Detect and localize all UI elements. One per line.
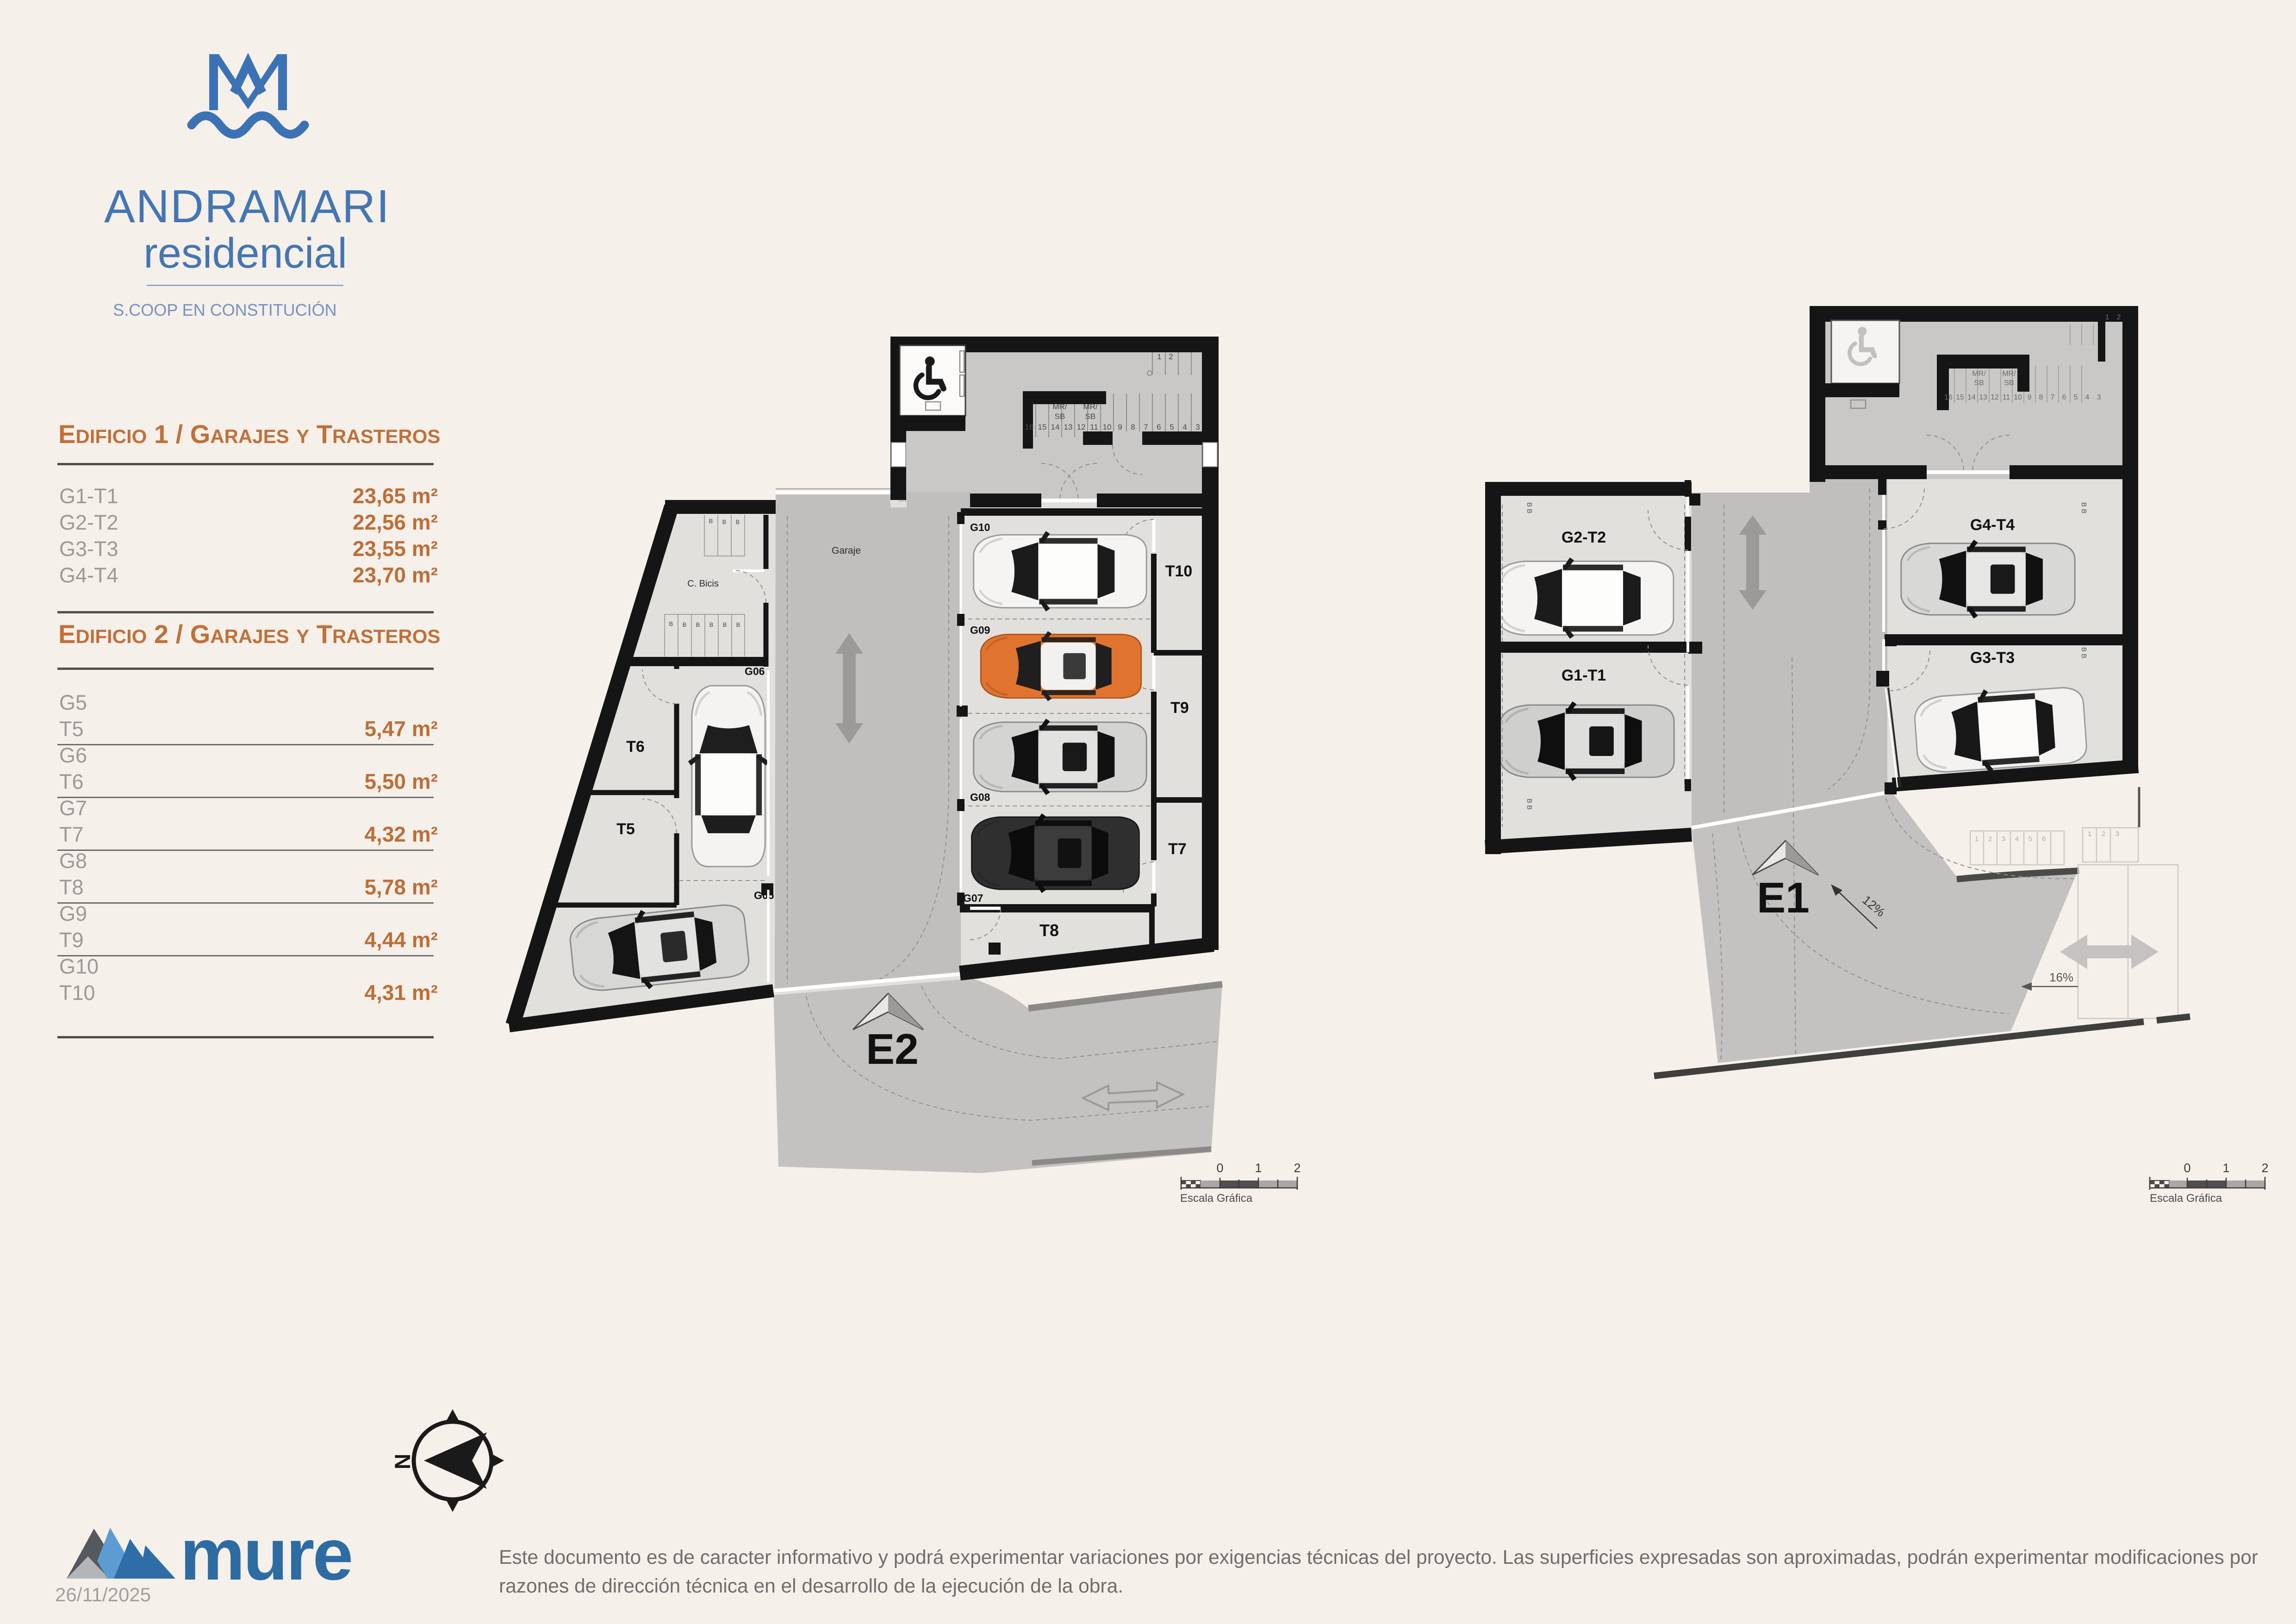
svg-text:MR/: MR/ <box>1083 402 1097 411</box>
svg-text:26/11/2025: 26/11/2025 <box>55 1584 151 1605</box>
svg-text:23,65 m²: 23,65 m² <box>353 484 438 508</box>
svg-text:6: 6 <box>1157 423 1161 431</box>
svg-text:B B: B B <box>2080 647 2088 658</box>
svg-text:G6: G6 <box>59 743 87 767</box>
svg-text:C. Bicis: C. Bicis <box>687 579 719 589</box>
svg-text:14: 14 <box>1051 423 1060 431</box>
svg-text:residencial: residencial <box>143 230 347 277</box>
svg-text:8: 8 <box>2039 394 2043 401</box>
svg-text:23,55 m²: 23,55 m² <box>353 537 438 561</box>
svg-text:G06: G06 <box>745 665 765 677</box>
svg-text:16: 16 <box>1025 423 1034 431</box>
svg-text:5,47 m²: 5,47 m² <box>364 717 438 741</box>
svg-text:4,44 m²: 4,44 m² <box>364 928 438 952</box>
svg-text:4,32 m²: 4,32 m² <box>364 822 438 846</box>
svg-text:G2-T2: G2-T2 <box>59 511 118 534</box>
svg-text:3: 3 <box>1195 423 1200 431</box>
svg-text:S.COOP EN CONSTITUCIÓN: S.COOP EN CONSTITUCIÓN <box>113 300 336 319</box>
svg-text:13: 13 <box>1979 394 1987 401</box>
svg-text:Garaje: Garaje <box>832 545 861 556</box>
svg-text:10: 10 <box>2014 394 2022 401</box>
svg-text:B: B <box>709 621 714 628</box>
svg-text:B: B <box>683 621 687 628</box>
svg-text:T6: T6 <box>626 738 645 756</box>
svg-text:G1-T1: G1-T1 <box>1562 667 1606 684</box>
svg-text:B: B <box>696 621 700 628</box>
svg-text:G3-T3: G3-T3 <box>1970 649 2015 667</box>
svg-text:B: B <box>722 518 727 525</box>
svg-text:10: 10 <box>1103 423 1112 431</box>
svg-text:ANDRAMARI: ANDRAMARI <box>104 181 390 232</box>
svg-text:16: 16 <box>1944 394 1953 401</box>
svg-text:2: 2 <box>1294 1161 1300 1175</box>
svg-text:2: 2 <box>1988 835 1992 843</box>
svg-text:23,70 m²: 23,70 m² <box>353 563 438 587</box>
svg-text:G1-T1: G1-T1 <box>59 484 118 508</box>
svg-text:B: B <box>669 620 673 627</box>
svg-text:B B: B B <box>2080 502 2088 513</box>
svg-text:E2: E2 <box>866 1025 919 1073</box>
svg-text:B: B <box>723 621 727 628</box>
svg-text:4,31 m²: 4,31 m² <box>364 981 438 1005</box>
svg-text:5: 5 <box>2028 835 2032 843</box>
svg-text:G8: G8 <box>59 849 87 873</box>
svg-text:B: B <box>736 621 740 628</box>
svg-text:0: 0 <box>1216 1161 1223 1175</box>
svg-text:16%: 16% <box>2049 970 2073 984</box>
svg-text:T7: T7 <box>59 823 84 846</box>
svg-text:T9: T9 <box>1170 699 1189 717</box>
svg-text:4: 4 <box>2015 835 2019 843</box>
svg-text:T8: T8 <box>1039 921 1059 940</box>
svg-text:1: 1 <box>1975 835 1979 843</box>
svg-text:1: 1 <box>2088 830 2091 838</box>
svg-text:SB: SB <box>2004 379 2014 387</box>
svg-text:T8: T8 <box>59 875 84 899</box>
svg-text:G10: G10 <box>970 521 990 533</box>
svg-text:Este documento es de caracter: Este documento es de caracter informativ… <box>499 1547 2258 1568</box>
svg-text:G09: G09 <box>970 624 990 636</box>
svg-text:MR/: MR/ <box>1052 402 1067 411</box>
svg-text:B: B <box>736 518 740 525</box>
svg-text:SB: SB <box>1974 379 1984 387</box>
svg-text:N: N <box>390 1454 415 1469</box>
svg-text:G07: G07 <box>963 892 983 904</box>
svg-text:B B: B B <box>1525 799 1533 810</box>
svg-text:G4-T4: G4-T4 <box>1970 516 2015 534</box>
svg-text:11: 11 <box>2003 394 2010 401</box>
svg-text:6: 6 <box>2042 835 2046 843</box>
svg-text:1: 1 <box>2222 1161 2229 1175</box>
svg-text:G10: G10 <box>59 955 99 978</box>
svg-text:T6: T6 <box>59 770 84 793</box>
svg-text:0: 0 <box>2184 1161 2190 1175</box>
svg-text:2: 2 <box>2102 830 2105 838</box>
svg-text:2: 2 <box>2117 313 2121 321</box>
svg-text:1: 1 <box>1157 352 1161 361</box>
svg-text:SB: SB <box>1055 412 1065 421</box>
svg-text:1: 1 <box>2105 313 2109 321</box>
svg-text:5: 5 <box>1170 423 1174 431</box>
svg-text:6: 6 <box>2062 394 2066 401</box>
svg-text:7: 7 <box>2051 394 2055 401</box>
svg-text:2: 2 <box>1169 352 1173 361</box>
svg-text:9: 9 <box>2028 394 2032 401</box>
svg-text:14: 14 <box>1967 394 1976 401</box>
svg-text:Escala Gráfica: Escala Gráfica <box>1180 1192 1253 1205</box>
svg-text:15: 15 <box>1956 394 1964 401</box>
svg-text:T10: T10 <box>59 981 95 1005</box>
svg-text:3: 3 <box>2002 835 2005 843</box>
svg-text:11: 11 <box>1090 423 1098 431</box>
svg-text:MR/: MR/ <box>1972 370 1986 378</box>
svg-text:T10: T10 <box>1165 562 1193 580</box>
svg-text:5: 5 <box>2074 394 2078 401</box>
svg-text:razones de dirección técnica e: razones de dirección técnica en el desar… <box>499 1575 1123 1597</box>
svg-text:22,56 m²: 22,56 m² <box>353 510 438 534</box>
svg-text:5,50 m²: 5,50 m² <box>364 769 438 793</box>
svg-text:MR/: MR/ <box>2002 370 2016 378</box>
svg-text:12: 12 <box>1991 394 1999 401</box>
svg-text:12: 12 <box>1077 423 1086 431</box>
svg-text:2: 2 <box>2261 1161 2268 1175</box>
svg-text:7: 7 <box>1144 423 1148 431</box>
svg-text:G4-T4: G4-T4 <box>59 563 118 587</box>
svg-text:9: 9 <box>1118 423 1122 431</box>
svg-text:G2-T2: G2-T2 <box>1562 529 1606 546</box>
svg-text:G5: G5 <box>59 691 87 714</box>
svg-text:4: 4 <box>2085 394 2090 401</box>
svg-text:8: 8 <box>1131 423 1135 431</box>
svg-text:T7: T7 <box>1168 840 1187 858</box>
svg-text:15: 15 <box>1038 423 1047 431</box>
svg-text:5,78 m²: 5,78 m² <box>364 875 438 899</box>
svg-text:B: B <box>709 518 713 525</box>
svg-text:Escala Gráfica: Escala Gráfica <box>2150 1192 2222 1205</box>
svg-text:13: 13 <box>1064 423 1073 431</box>
svg-text:E1: E1 <box>1757 874 1810 922</box>
svg-text:mure: mure <box>180 1514 351 1595</box>
svg-text:G08: G08 <box>970 791 990 803</box>
svg-text:3: 3 <box>2116 830 2119 838</box>
svg-text:G3-T3: G3-T3 <box>59 537 118 561</box>
svg-text:T5: T5 <box>616 820 635 838</box>
svg-text:1: 1 <box>1255 1161 1262 1175</box>
svg-text:3: 3 <box>2097 394 2101 401</box>
svg-text:G9: G9 <box>59 902 87 925</box>
svg-text:G7: G7 <box>59 796 87 820</box>
svg-text:T9: T9 <box>59 928 84 952</box>
svg-text:SB: SB <box>1085 412 1096 421</box>
svg-text:B B: B B <box>1525 502 1533 513</box>
svg-text:4: 4 <box>1182 423 1187 431</box>
svg-text:T5: T5 <box>59 717 84 741</box>
